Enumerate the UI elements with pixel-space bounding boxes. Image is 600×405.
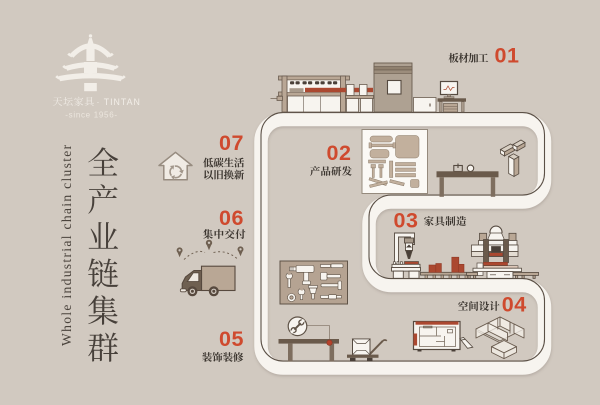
svg-text:06: 06 <box>219 206 244 230</box>
svg-text:04: 04 <box>502 293 527 317</box>
svg-text:-since 1956-: -since 1956- <box>65 111 117 120</box>
svg-text:01: 01 <box>495 44 520 68</box>
svg-text:02: 02 <box>327 141 352 165</box>
svg-text:05: 05 <box>219 327 244 351</box>
svg-text:· TINTAN: · TINTAN <box>97 97 141 107</box>
svg-text:Whole industrial chain cluster: Whole industrial chain cluster <box>59 144 74 346</box>
svg-text:07: 07 <box>219 131 244 155</box>
svg-text:03: 03 <box>394 209 419 233</box>
